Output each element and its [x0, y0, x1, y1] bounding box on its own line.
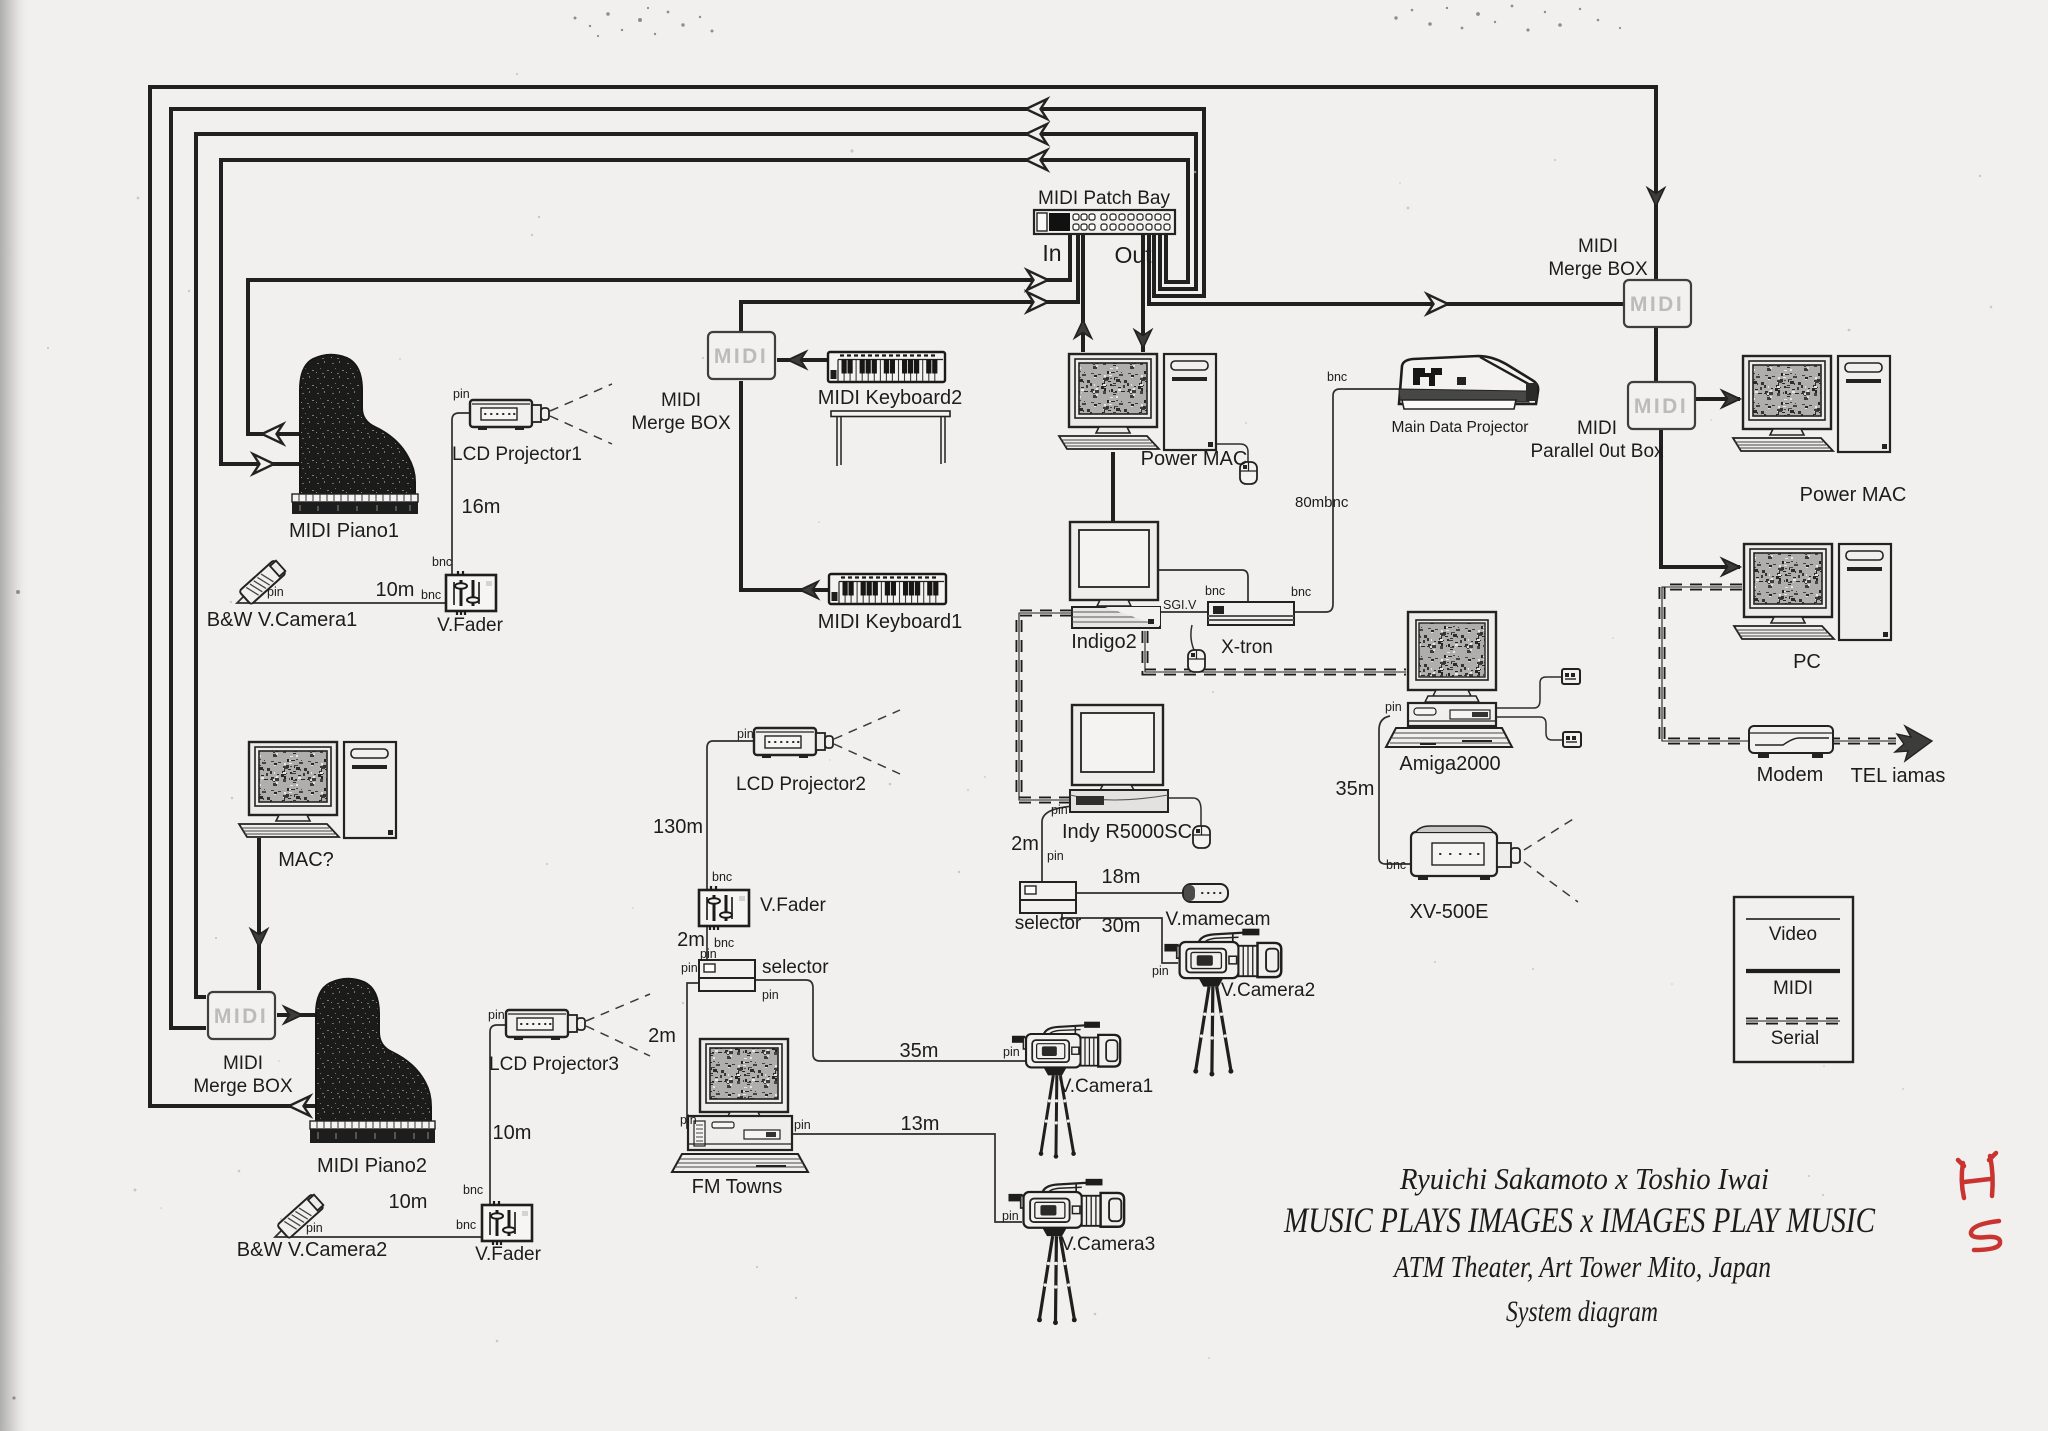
svg-text:2m: 2m	[1011, 833, 1039, 855]
svg-text:130m: 130m	[653, 816, 703, 838]
svg-text:bnc: bnc	[432, 555, 452, 569]
svg-text:Indigo2: Indigo2	[1071, 631, 1137, 653]
svg-text:MIDI Keyboard1: MIDI Keyboard1	[818, 611, 963, 633]
svg-text:bnc: bnc	[456, 1218, 476, 1232]
svg-text:pin: pin	[681, 961, 698, 975]
svg-text:35m: 35m	[1336, 778, 1375, 800]
svg-text:TEL iamas: TEL iamas	[1851, 765, 1946, 787]
svg-text:MIDI: MIDI	[1773, 978, 1813, 999]
svg-text:MIDI Keyboard2: MIDI Keyboard2	[818, 387, 963, 409]
svg-text:MIDI Patch Bay: MIDI Patch Bay	[1038, 188, 1170, 209]
svg-text:bnc: bnc	[1386, 858, 1406, 872]
svg-text:Merge BOX: Merge BOX	[193, 1076, 293, 1097]
svg-text:bnc: bnc	[463, 1183, 483, 1197]
svg-text:pin: pin	[794, 1118, 811, 1132]
svg-text:System diagram: System diagram	[1506, 1295, 1658, 1328]
svg-text:Out: Out	[1114, 242, 1152, 268]
svg-text:pin: pin	[762, 988, 779, 1002]
svg-text:In: In	[1042, 240, 1061, 266]
svg-text:bnc: bnc	[714, 936, 734, 950]
svg-text:bnc: bnc	[1205, 584, 1225, 598]
svg-text:bnc: bnc	[1327, 370, 1347, 384]
svg-text:pin: pin	[488, 1008, 505, 1022]
svg-text:pin: pin	[306, 1221, 323, 1235]
svg-text:bnc: bnc	[1291, 585, 1311, 599]
svg-text:pin: pin	[1003, 1045, 1020, 1059]
svg-text:MIDI Piano2: MIDI Piano2	[317, 1155, 427, 1177]
svg-text:pin: pin	[1385, 700, 1402, 714]
svg-text:MIDI: MIDI	[1577, 418, 1617, 439]
svg-text:selector: selector	[762, 957, 829, 978]
svg-text:Merge BOX: Merge BOX	[1548, 259, 1648, 280]
svg-text:V.Fader: V.Fader	[437, 615, 504, 636]
svg-text:Merge BOX: Merge BOX	[631, 413, 731, 434]
svg-text:Video: Video	[1769, 924, 1817, 945]
svg-text:13m: 13m	[901, 1113, 940, 1135]
svg-text:ATM Theater, Art Tower Mito, J: ATM Theater, Art Tower Mito, Japan	[1392, 1249, 1771, 1284]
svg-text:2m: 2m	[648, 1025, 676, 1047]
svg-text:V.Camera2: V.Camera2	[1221, 980, 1315, 1001]
svg-text:pin: pin	[1051, 803, 1068, 817]
svg-text:16m: 16m	[462, 496, 501, 518]
svg-text:LCD Projector3: LCD Projector3	[489, 1054, 619, 1075]
svg-text:Modem: Modem	[1757, 764, 1824, 786]
svg-text:V.mamecam: V.mamecam	[1166, 909, 1271, 930]
svg-text:MIDI: MIDI	[1578, 236, 1618, 257]
svg-text:XV-500E: XV-500E	[1410, 901, 1489, 923]
svg-text:V.Camera3: V.Camera3	[1061, 1234, 1155, 1255]
svg-text:MIDI: MIDI	[661, 390, 701, 411]
svg-text:MUSIC PLAYS IMAGES x IMAGES: MUSIC PLAYS IMAGES x IMAGES PLAY MUSIC	[1283, 1200, 1876, 1240]
svg-text:pin: pin	[1152, 964, 1169, 978]
svg-text:pin: pin	[453, 387, 470, 401]
svg-text:Parallel 0ut Box: Parallel 0ut Box	[1530, 441, 1664, 462]
svg-text:V.Camera1: V.Camera1	[1059, 1076, 1153, 1097]
svg-text:Main Data Projector: Main Data Projector	[1392, 419, 1529, 436]
svg-text:Power MAC: Power MAC	[1800, 484, 1907, 506]
svg-text:Power MAC: Power MAC	[1141, 448, 1248, 470]
svg-text:B&W V.Camera1: B&W V.Camera1	[207, 609, 357, 631]
svg-text:pin: pin	[1047, 849, 1064, 863]
svg-text:pin: pin	[1002, 1209, 1019, 1223]
svg-text:18m: 18m	[1102, 866, 1141, 888]
svg-text:Indy R5000SC: Indy R5000SC	[1062, 821, 1192, 843]
svg-text:X-tron: X-tron	[1221, 637, 1273, 658]
svg-text:10m: 10m	[376, 579, 415, 601]
svg-text:selector: selector	[1015, 913, 1082, 934]
svg-text:LCD Projector2: LCD Projector2	[736, 774, 866, 795]
svg-text:30m: 30m	[1102, 915, 1141, 937]
svg-text:Ryuichi Sakamoto x Toshio Iwai: Ryuichi Sakamoto x Toshio Iwai	[1399, 1161, 1769, 1196]
svg-text:Serial: Serial	[1771, 1028, 1820, 1049]
svg-text:pin: pin	[680, 1113, 697, 1127]
svg-text:10m: 10m	[493, 1122, 532, 1144]
svg-text:MIDI: MIDI	[223, 1053, 263, 1074]
svg-text:pin: pin	[267, 585, 284, 599]
svg-text:2m: 2m	[677, 929, 705, 951]
svg-text:Amiga2000: Amiga2000	[1399, 753, 1500, 775]
svg-text:MIDI Piano1: MIDI Piano1	[289, 520, 399, 542]
svg-text:V.Fader: V.Fader	[475, 1244, 542, 1265]
svg-text:MAC?: MAC?	[278, 849, 334, 871]
svg-text:pin: pin	[737, 727, 754, 741]
svg-text:bnc: bnc	[712, 870, 732, 884]
svg-text:SGI.V: SGI.V	[1163, 598, 1197, 612]
svg-text:PC: PC	[1793, 651, 1821, 673]
svg-text:V.Fader: V.Fader	[760, 895, 827, 916]
svg-text:35m: 35m	[900, 1040, 939, 1062]
svg-text:B&W V.Camera2: B&W V.Camera2	[237, 1239, 387, 1261]
svg-text:bnc: bnc	[421, 588, 441, 602]
svg-text:80mbnc: 80mbnc	[1295, 494, 1349, 511]
svg-text:FM Towns: FM Towns	[692, 1176, 783, 1198]
svg-text:10m: 10m	[389, 1191, 428, 1213]
svg-text:LCD Projector1: LCD Projector1	[452, 444, 582, 465]
